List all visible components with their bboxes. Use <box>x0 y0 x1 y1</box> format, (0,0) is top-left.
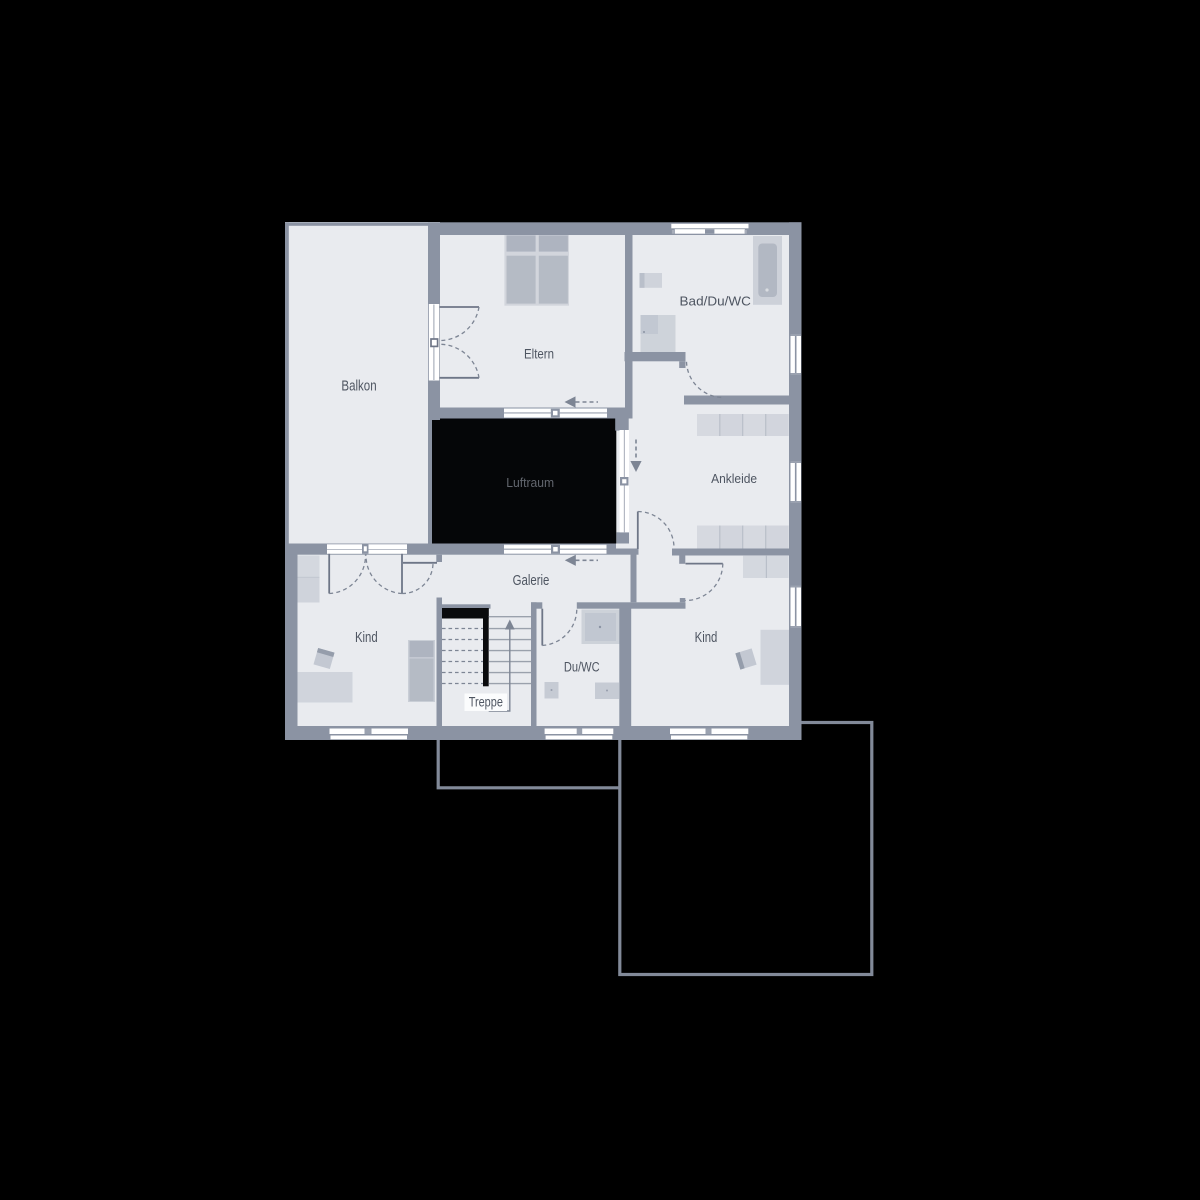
svg-text:Balkon: Balkon <box>341 379 376 395</box>
svg-text:Du/WC: Du/WC <box>564 660 600 675</box>
svg-text:Kind: Kind <box>695 630 718 646</box>
svg-text:Ankleide: Ankleide <box>711 471 757 486</box>
svg-text:Treppe: Treppe <box>469 694 503 710</box>
svg-text:Eltern: Eltern <box>524 346 554 362</box>
svg-text:Galerie: Galerie <box>513 573 550 589</box>
svg-text:Bad/Du/WC: Bad/Du/WC <box>680 293 751 308</box>
svg-text:Luftraum: Luftraum <box>506 476 554 490</box>
svg-text:Kind: Kind <box>355 630 378 646</box>
